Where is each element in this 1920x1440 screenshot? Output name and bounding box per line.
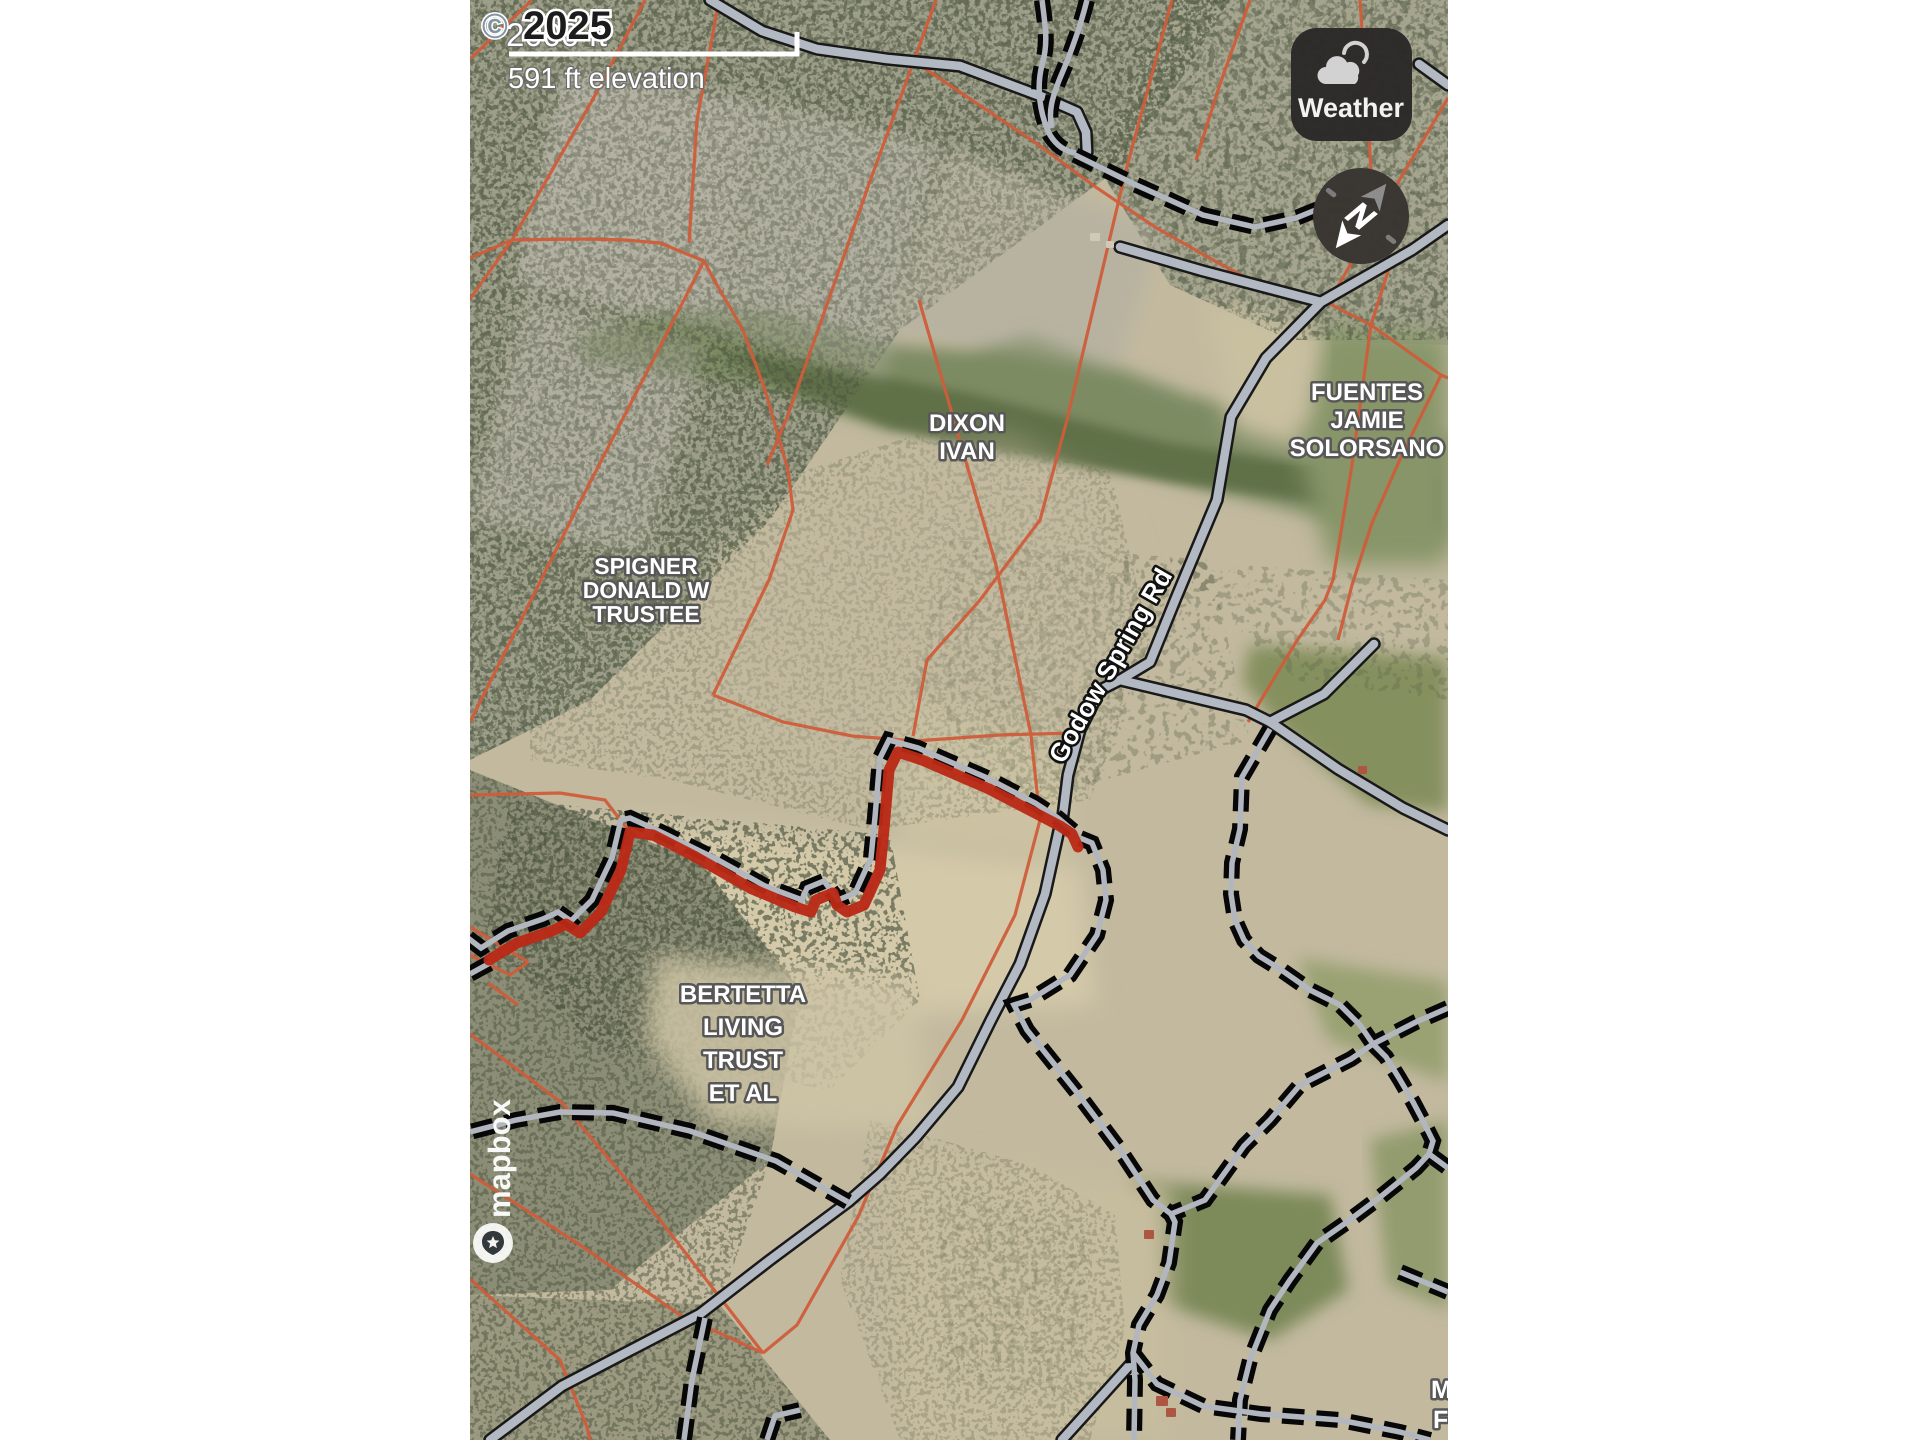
svg-text:F: F: [1433, 1406, 1448, 1434]
svg-text:LIVING: LIVING: [703, 1014, 783, 1041]
svg-text:JAMIE: JAMIE: [1330, 407, 1403, 434]
svg-text:DIXON: DIXON: [929, 410, 1005, 437]
svg-text:BERTETTA: BERTETTA: [680, 981, 806, 1008]
svg-text:TRUSTEE: TRUSTEE: [592, 601, 699, 627]
svg-text:2025: 2025: [523, 4, 612, 48]
svg-text:IVAN: IVAN: [939, 438, 995, 465]
svg-text:FUENTES: FUENTES: [1311, 379, 1423, 406]
svg-text:©: ©: [482, 7, 508, 46]
svg-text:mapbox: mapbox: [482, 1098, 517, 1218]
svg-text:591 ft elevation: 591 ft elevation: [508, 63, 705, 95]
svg-text:SPIGNER: SPIGNER: [594, 553, 698, 579]
svg-text:SOLORSANO: SOLORSANO: [1290, 435, 1445, 462]
svg-text:M: M: [1431, 1376, 1448, 1404]
svg-text:Weather: Weather: [1298, 93, 1405, 123]
svg-text:DONALD W: DONALD W: [583, 577, 710, 603]
svg-text:ET AL: ET AL: [709, 1080, 777, 1107]
svg-text:TRUST: TRUST: [703, 1047, 783, 1074]
